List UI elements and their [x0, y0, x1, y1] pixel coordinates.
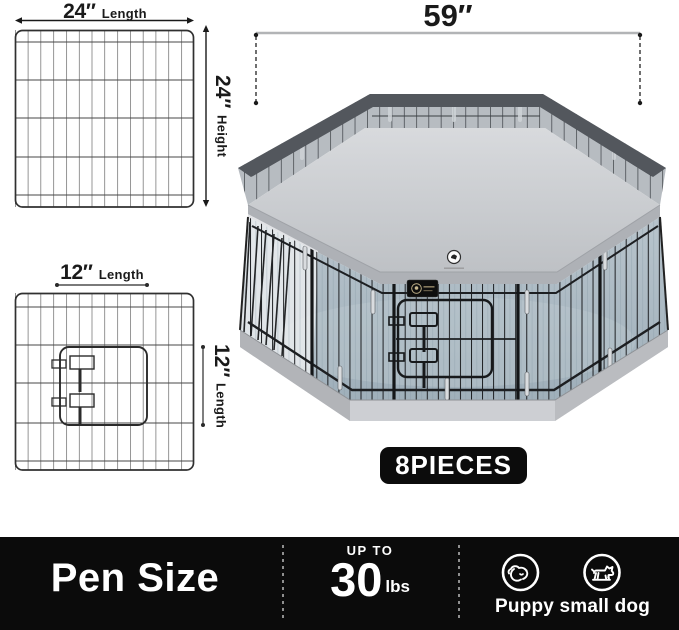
- dimension-12-side-line: [201, 345, 205, 427]
- product-infographic: 24″ Length 24″ Height 59″ 12″ Length 12″…: [0, 0, 679, 630]
- line-art-canvas: [0, 0, 679, 630]
- label-12-side: 12″ Length: [207, 344, 235, 428]
- pieces-badge: 8PIECES: [380, 447, 527, 484]
- playpen-illustration: [230, 88, 675, 421]
- label-24-height-unit: Height: [215, 115, 230, 157]
- weight-value: 30: [330, 558, 382, 603]
- label-24-length: 24″ Length: [15, 0, 195, 24]
- pen-size-title: Pen Size: [20, 556, 250, 601]
- label-24-height: 24″ Height: [207, 60, 237, 172]
- panel-brand-badge: [407, 280, 438, 297]
- sleeping-puppy-icon: [503, 555, 538, 590]
- dog-size-icons: [492, 546, 622, 596]
- door-panel-diagram: [15, 293, 194, 470]
- standing-small-dog-icon: [585, 555, 620, 590]
- label-12-length: 12″ Length: [42, 261, 162, 285]
- label-59-width: 59″: [230, 0, 666, 34]
- panel-24-diagram: [15, 30, 194, 207]
- weight-limit: UP TO 30 lbs: [292, 543, 448, 603]
- label-12-side-unit: Length: [214, 383, 229, 428]
- label-24-length-value: 24″: [63, 0, 96, 24]
- dog-size-label: Puppy small dog: [465, 596, 679, 618]
- label-12-side-value: 12″: [209, 344, 233, 377]
- divider: [458, 545, 460, 621]
- divider: [282, 545, 284, 621]
- label-12-length-unit: Length: [99, 267, 144, 282]
- weight-unit: lbs: [385, 577, 410, 603]
- label-24-height-value: 24″: [210, 75, 234, 108]
- bottom-info-bar: Pen Size UP TO 30 lbs: [0, 537, 679, 630]
- label-12-length-value: 12″: [60, 261, 93, 285]
- label-24-length-unit: Length: [102, 6, 147, 21]
